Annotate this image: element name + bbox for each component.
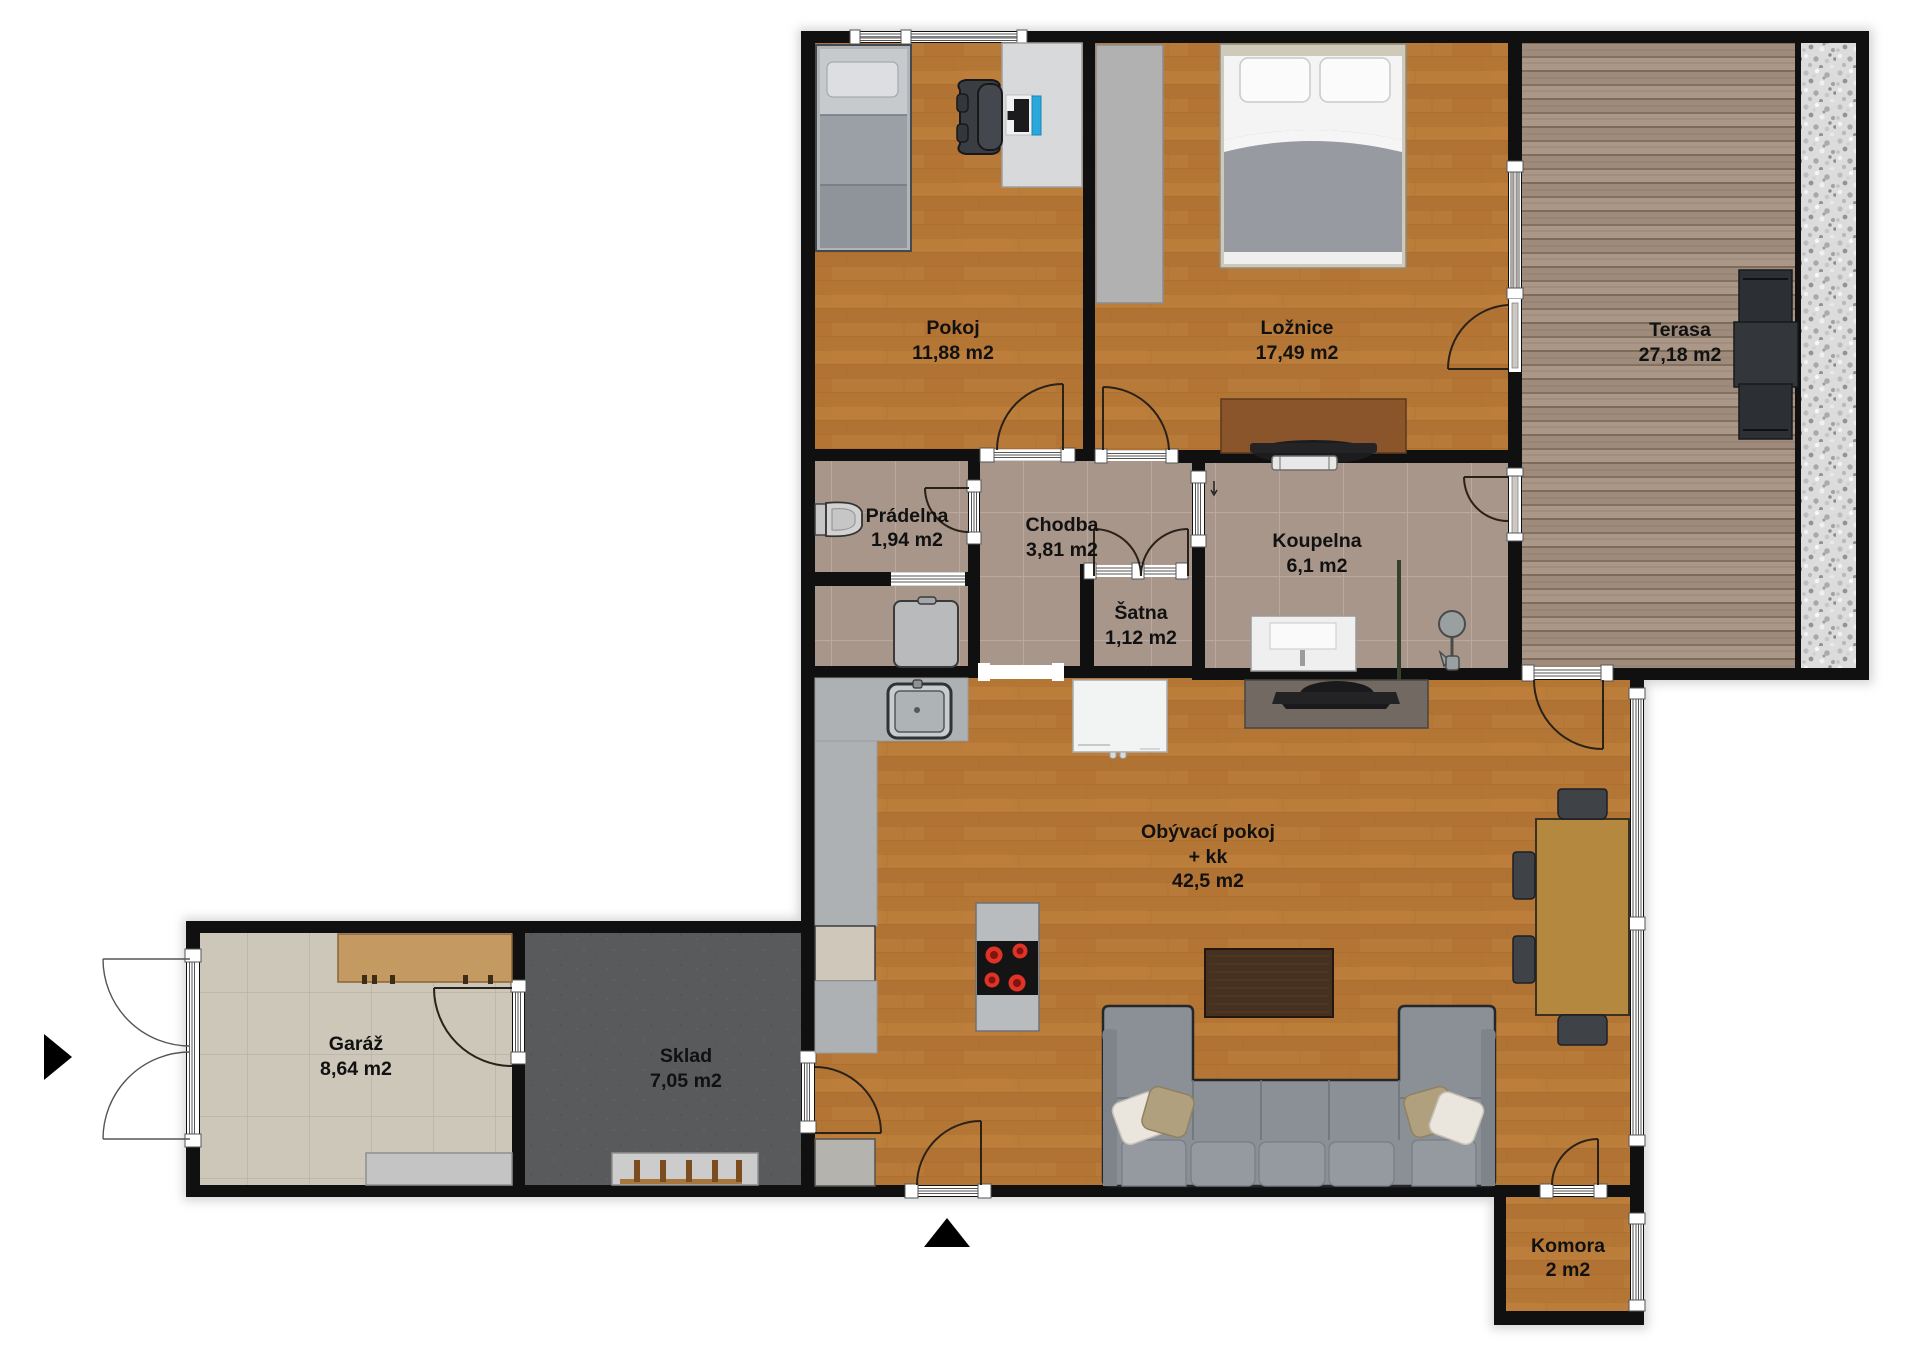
svg-text:Garáž: Garáž	[329, 1033, 384, 1055]
svg-text:Komora: Komora	[1531, 1235, 1606, 1257]
svg-text:Koupelna: Koupelna	[1272, 530, 1362, 552]
svg-text:2 m2: 2 m2	[1546, 1259, 1591, 1281]
svg-text:27,18 m2: 27,18 m2	[1639, 344, 1722, 366]
svg-text:Terasa: Terasa	[1649, 319, 1712, 341]
svg-text:+ kk: + kk	[1189, 846, 1228, 868]
svg-text:Prádelna: Prádelna	[866, 505, 950, 527]
svg-text:Obývací pokoj: Obývací pokoj	[1141, 821, 1275, 843]
svg-text:7,05 m2: 7,05 m2	[650, 1070, 722, 1092]
svg-text:Ložnice: Ložnice	[1261, 317, 1334, 339]
svg-text:3,81 m2: 3,81 m2	[1026, 539, 1098, 561]
svg-text:1,12 m2: 1,12 m2	[1105, 627, 1177, 649]
svg-text:6,1 m2: 6,1 m2	[1286, 555, 1347, 577]
svg-text:42,5 m2: 42,5 m2	[1172, 870, 1244, 892]
svg-text:Sklad: Sklad	[660, 1045, 712, 1067]
svg-text:11,88 m2: 11,88 m2	[912, 342, 994, 364]
svg-text:8,64 m2: 8,64 m2	[320, 1058, 392, 1080]
svg-text:Šatna: Šatna	[1114, 600, 1168, 624]
svg-text:17,49 m2: 17,49 m2	[1256, 342, 1339, 364]
svg-text:1,94 m2: 1,94 m2	[871, 529, 943, 551]
svg-text:Pokoj: Pokoj	[926, 317, 979, 339]
svg-text:Chodba: Chodba	[1026, 514, 1100, 536]
